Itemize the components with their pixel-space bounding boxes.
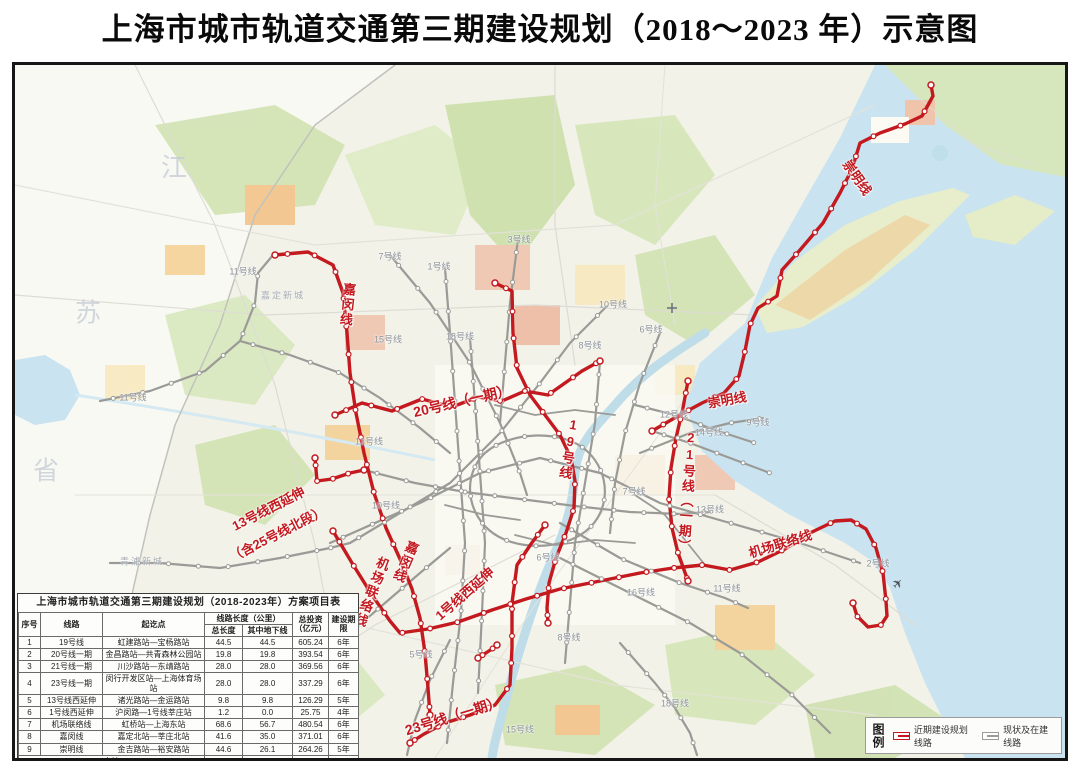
col-header-index: 序号 <box>19 612 41 636</box>
table-row: 321号线一期川沙路站—东靖路站28.028.0369.566年 <box>19 661 359 673</box>
legend-planned-label: 近期建设规划线路 <box>914 723 973 749</box>
table-row: 119号线虹建路站—宝杨路站44.544.5605.246年 <box>19 636 359 648</box>
total-underground: 247.9 <box>243 755 293 761</box>
total-investment: 2983.48 <box>293 755 329 761</box>
table-row: 220号线一期金昌路站—共青森林公园站19.819.8393.546年 <box>19 649 359 661</box>
table-row: 513号线西延伸诸光路站—金运路站9.89.8126.295年 <box>19 694 359 706</box>
col-header-period: 建设期限 <box>329 612 359 636</box>
legend: 图例 近期建设规划线路 现状及在建线路 <box>865 717 1062 754</box>
table-row: 61号线西延伸沪闵路—1号线莘庄站1.20.025.754年 <box>19 707 359 719</box>
project-table: 上海市城市轨道交通第三期建设规划（2018-2023年）方案项目表 序号 线路 … <box>17 593 359 761</box>
col-header-line: 线路 <box>41 612 103 636</box>
planned-line-swatch <box>893 732 910 740</box>
col-header-total-length: 总长度 <box>205 624 243 636</box>
table-row: 8嘉闵线嘉定北站—莘庄北站41.635.0371.016年 <box>19 731 359 743</box>
col-header-investment: 总投资（亿元） <box>293 612 329 636</box>
table-row: 9崇明线金吉路站—裕安路站44.626.1264.265年 <box>19 743 359 755</box>
legend-title: 图例 <box>872 723 884 749</box>
table-total-row: 合计 286.1 247.9 2983.48 <box>19 755 359 761</box>
table-row: 7机场联络线虹桥站—上海东站68.656.7480.546年 <box>19 719 359 731</box>
legend-existing-label: 现状及在建线路 <box>1003 723 1055 749</box>
col-header-endpoints: 起讫点 <box>103 612 205 636</box>
legend-item-existing: 现状及在建线路 <box>982 723 1055 749</box>
page-title: 上海市城市轨道交通第三期建设规划（2018～2023 年）示意图 <box>0 4 1080 49</box>
total-label: 合计 <box>19 755 205 761</box>
page: 上海市城市轨道交通第三期建设规划（2018～2023 年）示意图 <box>0 0 1080 761</box>
legend-item-planned: 近期建设规划线路 <box>893 723 973 749</box>
existing-line-swatch <box>982 732 999 740</box>
total-period-empty <box>329 755 359 761</box>
table-title: 上海市城市轨道交通第三期建设规划（2018-2023年）方案项目表 <box>19 594 359 612</box>
total-length: 286.1 <box>205 755 243 761</box>
table-row: 423号线一期闵行开发区站—上海体育场站28.028.0337.296年 <box>19 673 359 694</box>
col-header-length-group: 线路长度（公里） <box>205 612 293 624</box>
col-header-underground: 其中地下线 <box>243 624 293 636</box>
map-canvas: 江 苏 省 嘉定新城 青浦新城 嘉闵线 崇明线 20号线（一期） 19号线 崇明… <box>12 62 1068 761</box>
